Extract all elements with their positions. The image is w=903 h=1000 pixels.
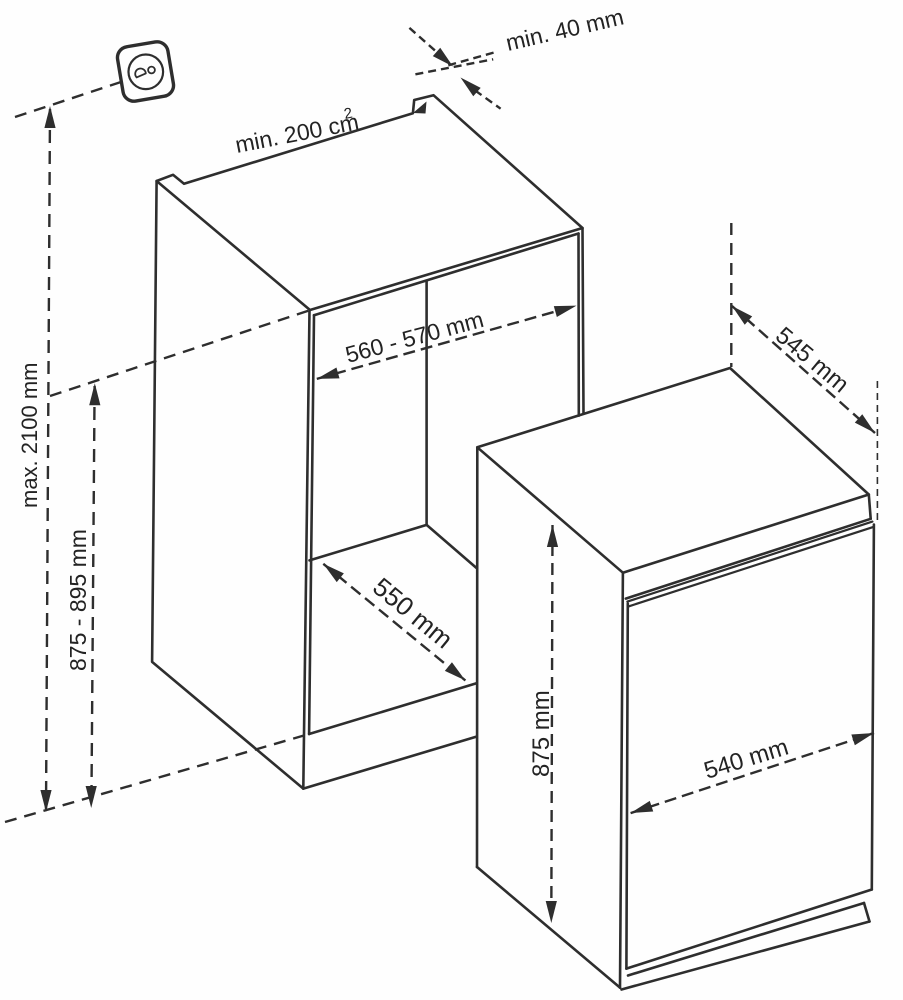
- svg-text:max. 2100 mm: max. 2100 mm: [17, 363, 42, 509]
- svg-text:875 - 895 mm: 875 - 895 mm: [65, 529, 91, 671]
- svg-text:875 mm: 875 mm: [528, 690, 555, 777]
